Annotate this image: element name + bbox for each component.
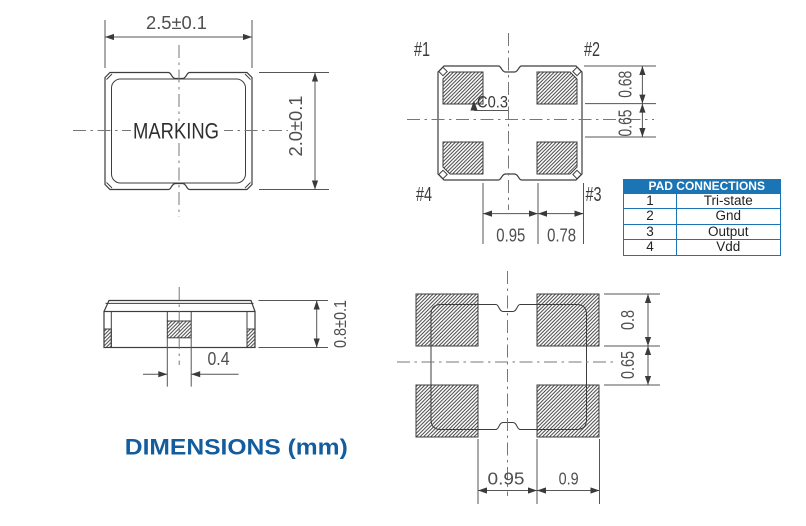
svg-text:DIMENSIONS (mm): DIMENSIONS (mm) bbox=[125, 435, 348, 460]
svg-text:0.65: 0.65 bbox=[617, 351, 638, 379]
svg-text:#1: #1 bbox=[414, 39, 430, 61]
svg-text:0.78: 0.78 bbox=[547, 225, 576, 246]
svg-text:MARKING: MARKING bbox=[133, 119, 219, 144]
svg-text:C0.3: C0.3 bbox=[477, 93, 508, 112]
svg-text:2.0±0.1: 2.0±0.1 bbox=[285, 96, 306, 157]
svg-text:#4: #4 bbox=[416, 184, 432, 206]
svg-text:2.5±0.1: 2.5±0.1 bbox=[146, 12, 207, 33]
svg-text:0.4: 0.4 bbox=[208, 348, 230, 369]
svg-text:0.65: 0.65 bbox=[615, 110, 636, 137]
svg-text:0.8: 0.8 bbox=[617, 310, 638, 330]
svg-text:0.8±0.1: 0.8±0.1 bbox=[330, 300, 350, 348]
svg-text:0.95: 0.95 bbox=[496, 225, 525, 246]
svg-text:#3: #3 bbox=[586, 184, 602, 206]
svg-text:0.9: 0.9 bbox=[559, 469, 579, 489]
svg-text:#2: #2 bbox=[584, 39, 600, 61]
svg-text:0.68: 0.68 bbox=[615, 71, 636, 98]
svg-text:0.95: 0.95 bbox=[488, 469, 525, 489]
